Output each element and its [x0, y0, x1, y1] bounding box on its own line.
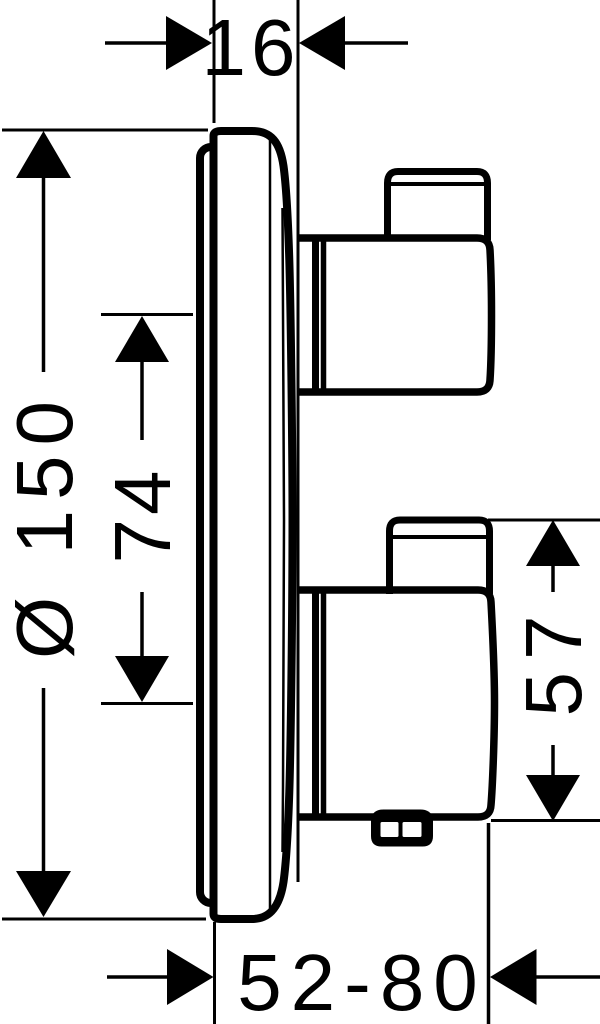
svg-text:57: 57 [509, 604, 598, 717]
svg-text:74: 74 [98, 467, 187, 564]
svg-text:52-80: 52-80 [237, 938, 487, 1024]
svg-text:16: 16 [202, 3, 301, 92]
svg-text:Ø 150: Ø 150 [0, 391, 89, 659]
